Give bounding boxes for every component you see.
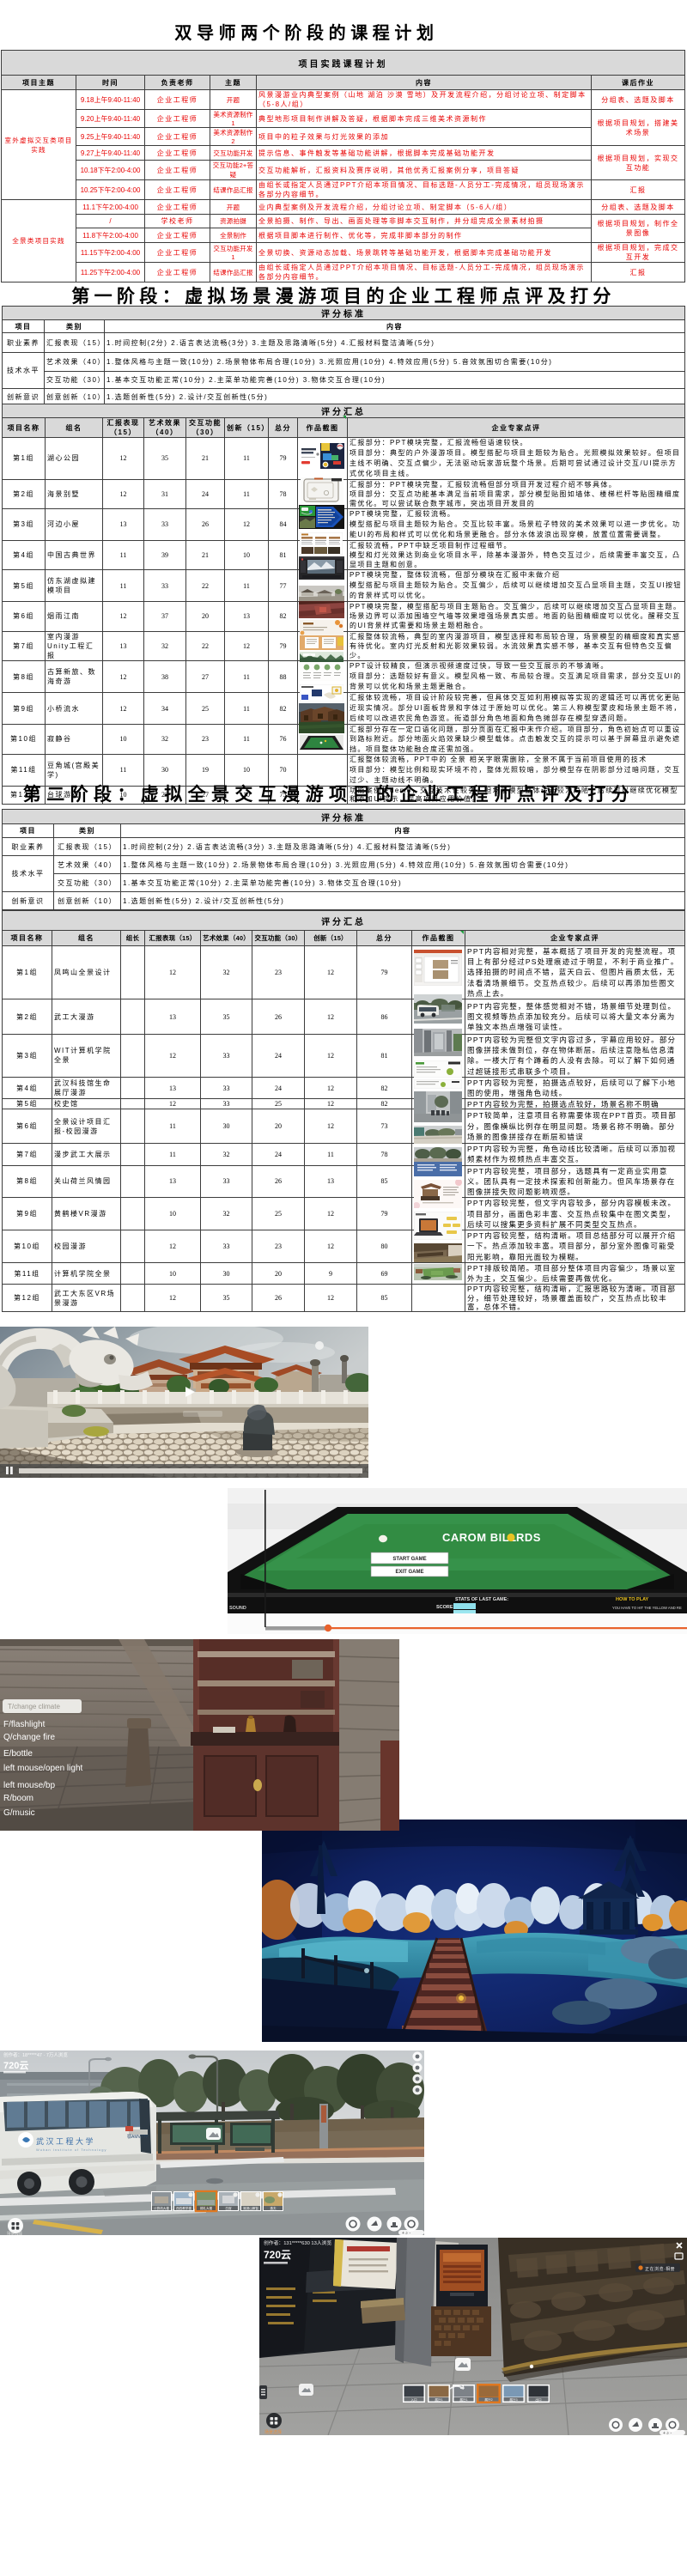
svg-text:HOW TO PLAY: HOW TO PLAY [616,1597,649,1602]
svg-text:展厅1: 展厅1 [435,2397,442,2402]
svg-text:+ ⌕ -: + ⌕ - [402,2231,410,2235]
svg-text:T/change climate: T/change climate [8,1703,60,1710]
svg-text:F/flashlight: F/flashlight [3,1720,46,1729]
svg-text:创作者：18*****47 · 7万人浏览: 创作者：18*****47 · 7万人浏览 [3,2051,68,2058]
svg-text:展厅1: 展厅1 [459,2397,467,2402]
svg-text:创作者：131*****630 13人浏览: 创作者：131*****630 13人浏览 [264,2239,331,2246]
svg-text:西四教学楼: 西四教学楼 [176,2206,192,2210]
svg-text:Wuhan Institute of Technology: Wuhan Institute of Technology [36,2148,106,2152]
svg-text:E/bottle: E/bottle [3,1749,33,1759]
svg-text:CAROM BILL: CAROM BILL [442,1531,517,1544]
svg-text:场景选择: 场景选择 [264,2429,282,2435]
svg-text:left mouse/open light: left mouse/open light [3,1764,83,1773]
svg-text:SOUND: SOUND [229,1606,246,1611]
svg-text:场景选择: 场景选择 [7,2231,22,2236]
svg-text:展厅3: 展厅3 [509,2397,517,2402]
svg-text:EXIT GAME: EXIT GAME [395,1570,423,1575]
svg-text:SCORE:: SCORE: [436,1605,455,1610]
svg-text:YOU HAVE TO HIT THE YELLOW AND: YOU HAVE TO HIT THE YELLOW AND RE [612,1606,682,1610]
svg-text:展厅2: 展厅2 [484,2397,492,2402]
svg-text:锦礼大楼: 锦礼大楼 [200,2206,213,2210]
svg-text:鄂AMV7??: 鄂AMV7?? [127,2134,148,2140]
svg-text:left mouse/bp: left mouse/bp [3,1781,55,1790]
svg-text:+ ⌕ -: + ⌕ - [663,2431,672,2435]
svg-text:RDS: RDS [516,1531,541,1544]
svg-text:逸夫: 逸夫 [270,2206,277,2210]
svg-text:武汉工程大学: 武汉工程大学 [36,2136,95,2146]
svg-text:计算机大楼: 计算机大楼 [154,2206,169,2210]
svg-text:R/boom: R/boom [3,1794,33,1803]
svg-text:湖滨山枫智: 湖滨山枫智 [243,2206,258,2210]
svg-text:入口: 入口 [410,2397,417,2402]
svg-text:STATS OF LAST GAME:: STATS OF LAST GAME: [455,1597,508,1602]
svg-text:START GAME: START GAME [392,1557,426,1562]
svg-text:白宫: 白宫 [225,2206,232,2210]
svg-text:正在浏览·相册: 正在浏览·相册 [645,2266,675,2272]
svg-text:720云: 720云 [3,2060,28,2071]
svg-text:出口: 出口 [535,2397,542,2402]
svg-text:G/music: G/music [3,1808,35,1818]
svg-text:Q/change fire: Q/change fire [3,1733,55,1742]
svg-text:720云: 720云 [264,2249,291,2261]
